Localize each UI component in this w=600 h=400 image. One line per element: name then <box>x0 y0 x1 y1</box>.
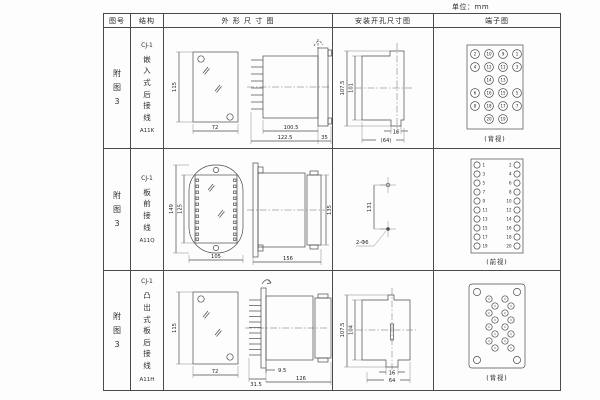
terminal-number: 3 <box>515 64 518 69</box>
terminal-number: 2 <box>473 51 476 56</box>
table-row-a11k: 附图3 CJ-1 嵌入式后接线 A11K <box>104 28 561 149</box>
terminal-diagram-a11h: (背视) <box>435 272 560 389</box>
terminal-number: 6 <box>473 90 476 95</box>
terminal-number: 12 <box>506 207 512 212</box>
terminal-number: 1 <box>515 51 518 56</box>
terminal-number: 16 <box>486 90 492 95</box>
dim-label: 16 <box>388 371 395 377</box>
col-header-structure: 结构 <box>131 14 164 28</box>
spec-table: 图号 结构 外 形 尺 寸 图 安装开孔尺寸图 端子图 附图3 CJ-1 嵌入式… <box>103 13 561 391</box>
terminal-number: 3 <box>482 171 485 176</box>
dim-label: 107.5 <box>340 80 346 95</box>
terminal-number: 4 <box>508 171 511 176</box>
terminal-number: 14 <box>506 216 512 221</box>
dim-label: 100.5 <box>283 125 298 131</box>
dim-label: 149 <box>169 204 175 214</box>
terminal-diagram-a11k: 2 10 9 1 4 12 11 3 14 13 6 16 <box>435 30 560 147</box>
terminal-number: 9 <box>501 51 504 56</box>
terminal-view-caption: (前视) <box>486 257 508 266</box>
install-hole-drawing-a11k: 107.5 101 16 (64) <box>334 30 433 147</box>
outline-drawing-a11h: 115 72 <box>165 272 332 389</box>
header-row: 图号 结构 外 形 尺 寸 图 安装开孔尺寸图 端子图 <box>104 14 561 28</box>
fig-no-label: 附图3 <box>112 67 121 109</box>
terminal-number: 8 <box>473 103 476 108</box>
dim-label: 131 <box>367 202 373 212</box>
outline-drawing-a11q: 149 125 105 <box>165 151 332 269</box>
terminal-number: 10 <box>486 51 492 56</box>
col-header-outline: 外 形 尺 寸 图 <box>164 14 333 28</box>
terminal-number: 4 <box>473 64 476 69</box>
col-header-install: 安装开孔尺寸图 <box>333 14 434 28</box>
terminal-number: 1 <box>482 162 485 167</box>
dim-label: (64) <box>380 138 391 144</box>
terminal-number: 17 <box>500 103 506 108</box>
terminal-number: 20 <box>506 243 512 248</box>
terminal-diagram-a11q: 1 2 3 4 5 6 7 8 9 10 <box>435 151 560 269</box>
model-code-label: A11K <box>140 128 154 134</box>
terminal-number: 7 <box>482 189 485 194</box>
table-row-a11h: 附图3 CJ-1 凸出式板后接线 A11H <box>104 271 561 391</box>
terminal-number: 19 <box>482 243 488 248</box>
model-label: CJ-1 <box>141 42 153 49</box>
model-code-label: A11Q <box>139 238 154 244</box>
col-header-fig-no: 图号 <box>104 14 131 28</box>
dim-label: 72 <box>211 125 218 131</box>
terminal-number: 17 <box>482 234 488 239</box>
dim-label: 122.5 <box>277 135 292 141</box>
structure-cell: CJ-1 板前接线 A11Q <box>131 175 163 245</box>
hole-spec-label: 2-Φ6 <box>356 240 369 246</box>
terminal-number: 11 <box>500 64 506 69</box>
terminal-number: 18 <box>506 234 512 239</box>
dim-label: 101 <box>348 83 354 93</box>
mount-type-label: 凸出式板后接线 <box>142 290 151 371</box>
terminal-number: 12 <box>486 64 492 69</box>
dim-label: 125 <box>177 204 183 214</box>
terminal-number: 15 <box>500 90 506 95</box>
mount-type-label: 板前接线 <box>142 187 151 234</box>
dim-label: 135 <box>327 205 332 215</box>
dim-label: 107.5 <box>340 323 346 338</box>
terminal-number: 15 <box>482 225 488 230</box>
terminal-number: 18 <box>486 103 492 108</box>
dim-label: 35 <box>321 135 328 141</box>
terminal-number: 7 <box>515 103 518 108</box>
col-header-terminal: 端子图 <box>434 14 561 28</box>
table-row-a11q: 附图3 CJ-1 板前接线 A11Q <box>104 149 561 271</box>
terminal-number: 5 <box>482 180 485 185</box>
terminal-number: 9 <box>482 198 485 203</box>
outline-drawing-a11k: 115 72 <box>165 30 332 147</box>
model-label: CJ-1 <box>141 278 153 285</box>
dim-label: 72 <box>211 369 218 375</box>
terminal-number: 8 <box>508 189 511 194</box>
dim-label: 16 <box>392 129 399 135</box>
terminal-view-caption: (背视) <box>486 373 508 382</box>
terminal-number: 16 <box>506 225 512 230</box>
terminal-number: 13 <box>500 77 506 82</box>
terminal-number: 20 <box>486 116 492 121</box>
document-page: 单位：mm 图号 结构 外 形 尺 寸 图 安装开孔尺寸图 端子图 附图3 CJ… <box>0 0 600 400</box>
dim-label: 9.5 <box>278 368 286 374</box>
dim-label: 105 <box>211 254 221 260</box>
install-hole-drawing-a11h: 107.5 104 16 64 <box>334 272 433 389</box>
structure-cell: CJ-1 嵌入式后接线 A11K <box>131 42 163 135</box>
unit-label: 单位：mm <box>452 2 489 12</box>
dim-label: 31.5 <box>250 382 262 388</box>
dim-label: 156 <box>283 256 293 262</box>
model-code-label: A11H <box>140 377 155 383</box>
fig-no-label: 附图3 <box>112 189 121 231</box>
terminal-number: 6 <box>508 180 511 185</box>
dim-label: 115 <box>172 323 178 333</box>
terminal-number: 2 <box>508 162 511 167</box>
mount-type-label: 嵌入式后接线 <box>142 54 151 124</box>
install-hole-drawing-a11q: 131 2-Φ6 <box>334 151 433 269</box>
model-label: CJ-1 <box>141 175 153 182</box>
dim-label: 104 <box>348 324 354 335</box>
dim-label: 64 <box>388 378 395 384</box>
dim-label: 126 <box>296 376 306 382</box>
terminal-number: 19 <box>500 116 506 121</box>
dim-label: 115 <box>172 82 178 92</box>
fig-no-label: 附图3 <box>112 310 121 352</box>
terminal-number: 14 <box>486 77 492 82</box>
terminal-view-caption: (背视) <box>484 134 506 143</box>
terminal-number: 13 <box>482 216 488 221</box>
terminal-number: 5 <box>515 90 518 95</box>
terminal-number: 11 <box>482 207 488 212</box>
structure-cell: CJ-1 凸出式板后接线 A11H <box>131 278 163 382</box>
terminal-number: 10 <box>506 198 512 203</box>
